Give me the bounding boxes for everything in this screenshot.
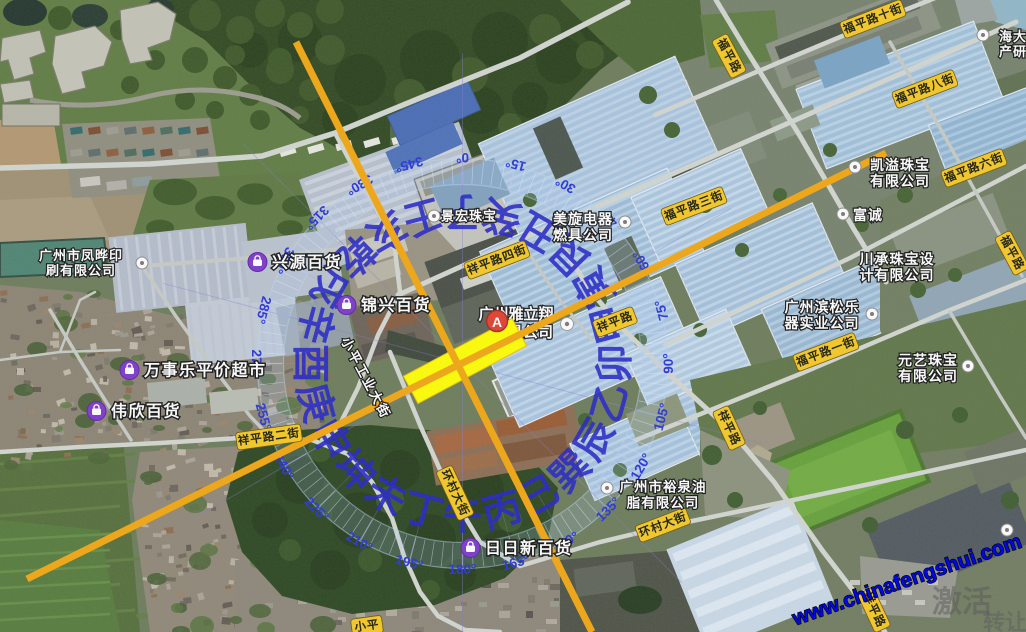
- svg-text:转让: 转让: [983, 610, 1026, 632]
